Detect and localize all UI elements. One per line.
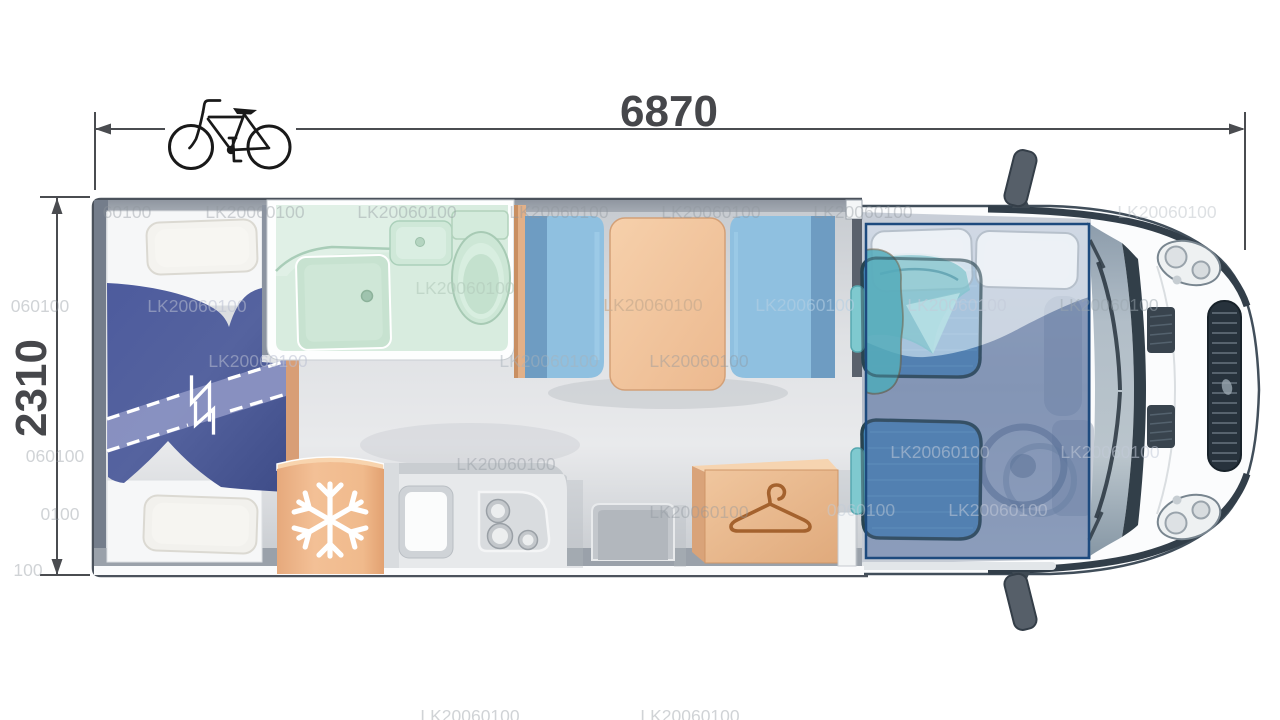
svg-text:LK20060100: LK20060100 (499, 351, 599, 371)
svg-text:LK20060100: LK20060100 (1060, 442, 1160, 462)
svg-text:LK20060100: LK20060100 (1117, 202, 1217, 222)
svg-text:LK20060100: LK20060100 (948, 500, 1048, 520)
svg-text:LK20060100: LK20060100 (1059, 295, 1159, 315)
svg-text:LK20060100: LK20060100 (456, 454, 556, 474)
svg-text:LK20060100: LK20060100 (649, 351, 749, 371)
svg-text:060100: 060100 (26, 446, 85, 466)
svg-text:60100: 60100 (103, 202, 152, 222)
svg-text:LK20060100: LK20060100 (415, 278, 515, 298)
svg-text:6870: 6870 (620, 87, 718, 136)
svg-text:060100: 060100 (11, 296, 70, 316)
svg-text:100: 100 (13, 560, 42, 580)
svg-text:LK20060100: LK20060100 (420, 706, 520, 720)
svg-text:LK20060100: LK20060100 (208, 351, 308, 371)
svg-text:2310: 2310 (7, 339, 56, 437)
svg-text:LK20060100: LK20060100 (661, 202, 761, 222)
svg-text:LK20060100: LK20060100 (813, 202, 913, 222)
svg-text:0100: 0100 (41, 504, 80, 524)
svg-text:LK20060100: LK20060100 (755, 295, 855, 315)
svg-text:LK20060100: LK20060100 (357, 202, 457, 222)
svg-text:LK20060100: LK20060100 (147, 296, 247, 316)
svg-text:LK20060100: LK20060100 (509, 202, 609, 222)
svg-text:LK20060100: LK20060100 (890, 442, 990, 462)
svg-text:LK20060100: LK20060100 (603, 295, 703, 315)
svg-text:0060100: 0060100 (827, 500, 895, 520)
svg-text:LK20060100: LK20060100 (205, 202, 305, 222)
svg-text:LK20060100: LK20060100 (649, 502, 749, 522)
svg-text:LK20060100: LK20060100 (640, 706, 740, 720)
svg-text:LK20060100: LK20060100 (907, 295, 1007, 315)
